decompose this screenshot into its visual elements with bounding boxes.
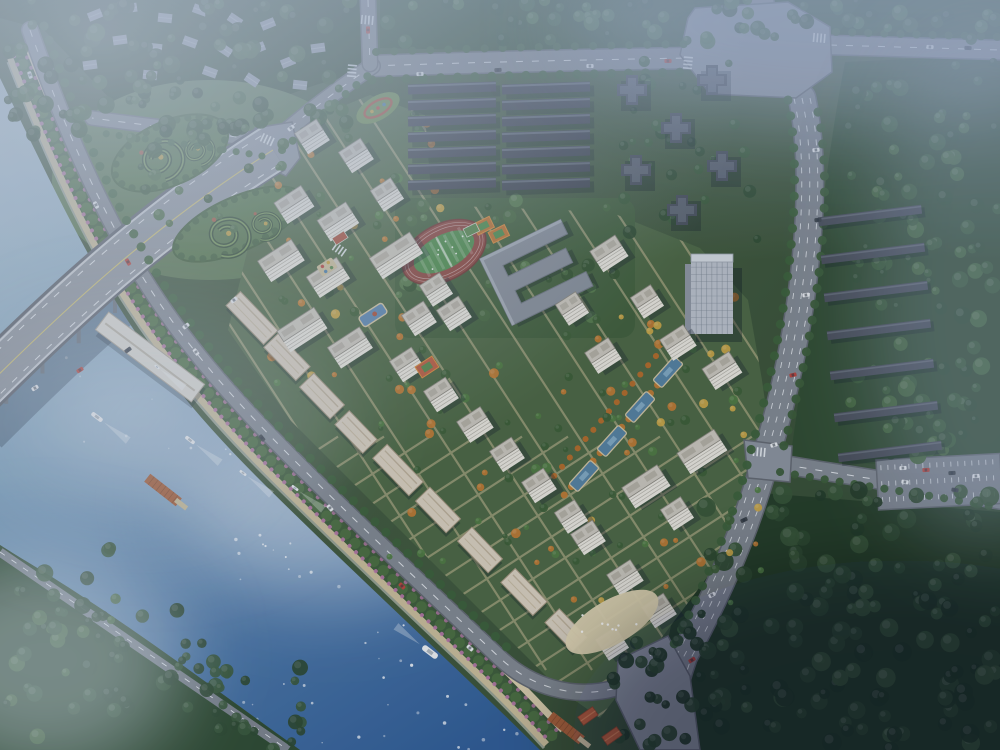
aerial-rendering — [0, 0, 1000, 750]
cool-tint — [0, 0, 1000, 750]
masterplan-scene — [0, 0, 1000, 750]
atmosphere-layer — [0, 0, 1000, 750]
